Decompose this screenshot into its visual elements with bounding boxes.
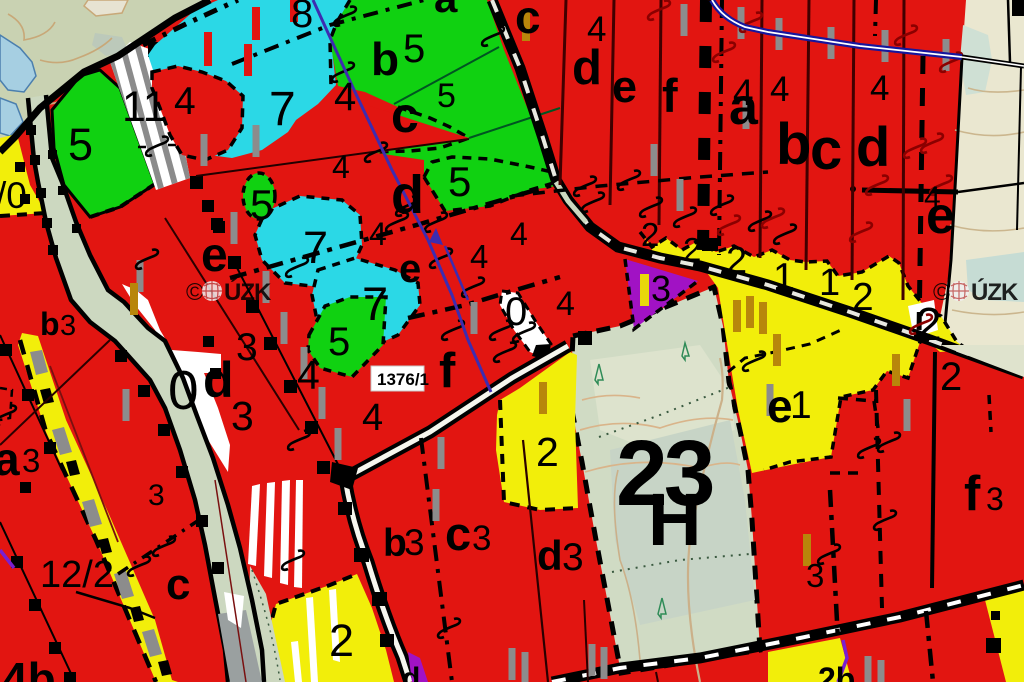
svg-text:ÚZK: ÚZK xyxy=(971,278,1019,306)
svg-text:2: 2 xyxy=(940,355,962,399)
svg-text:3: 3 xyxy=(472,519,491,558)
svg-text:H: H xyxy=(648,478,701,561)
svg-text:4: 4 xyxy=(556,285,575,323)
svg-text:1: 1 xyxy=(773,256,795,299)
svg-text:e: e xyxy=(767,380,793,432)
svg-text:c: c xyxy=(445,507,471,560)
svg-text:5: 5 xyxy=(328,320,350,364)
svg-text:b: b xyxy=(371,33,399,85)
svg-text:d: d xyxy=(402,662,420,682)
svg-text:d: d xyxy=(537,532,563,579)
svg-text:11: 11 xyxy=(122,83,167,131)
svg-text:3: 3 xyxy=(651,268,671,309)
svg-text:2: 2 xyxy=(726,240,747,282)
svg-text:4: 4 xyxy=(770,70,789,109)
svg-text:7: 7 xyxy=(303,222,328,273)
svg-text:a: a xyxy=(729,78,759,136)
svg-text:e: e xyxy=(612,61,637,112)
svg-text:5: 5 xyxy=(448,158,471,205)
svg-text:2: 2 xyxy=(641,216,659,253)
svg-text:3: 3 xyxy=(806,557,824,594)
svg-text:d: d xyxy=(203,352,234,408)
svg-text:a: a xyxy=(434,0,458,21)
svg-text:d: d xyxy=(856,115,890,178)
svg-text:3: 3 xyxy=(236,326,258,369)
svg-text:2: 2 xyxy=(536,429,559,475)
svg-text:3: 3 xyxy=(986,481,1004,517)
svg-text:d: d xyxy=(572,41,602,95)
svg-text:c: c xyxy=(810,117,842,182)
svg-text:0: 0 xyxy=(168,359,199,421)
svg-text:2b: 2b xyxy=(818,661,855,682)
svg-text:e: e xyxy=(926,187,955,245)
svg-text:4: 4 xyxy=(297,352,320,398)
svg-text:3: 3 xyxy=(231,393,254,439)
svg-text:5: 5 xyxy=(250,181,273,228)
svg-text:3: 3 xyxy=(22,442,40,479)
svg-text:7: 7 xyxy=(269,83,296,136)
svg-text:4: 4 xyxy=(334,75,356,119)
svg-text:ÚZK: ÚZK xyxy=(224,278,272,306)
svg-text:1: 1 xyxy=(790,384,812,427)
svg-text:5: 5 xyxy=(403,27,425,71)
svg-text:e: e xyxy=(201,229,228,282)
svg-text:2: 2 xyxy=(683,231,701,268)
svg-text:12/2: 12/2 xyxy=(40,554,114,596)
svg-text:1: 1 xyxy=(819,262,840,304)
svg-text:b: b xyxy=(776,112,811,177)
svg-text:8: 8 xyxy=(291,0,313,36)
svg-text:7: 7 xyxy=(362,277,388,330)
svg-text:5: 5 xyxy=(437,77,456,115)
svg-text:3: 3 xyxy=(404,522,425,563)
svg-text:c: c xyxy=(515,0,541,43)
svg-text:4: 4 xyxy=(470,238,488,275)
svg-text:4: 4 xyxy=(369,216,387,252)
svg-text:c: c xyxy=(166,560,190,609)
svg-text:f: f xyxy=(964,467,981,521)
svg-text:3: 3 xyxy=(148,479,165,512)
svg-text:b: b xyxy=(40,306,60,342)
svg-text:4: 4 xyxy=(174,80,196,123)
svg-text:0: 0 xyxy=(505,290,527,334)
svg-text:1376/1: 1376/1 xyxy=(377,370,429,389)
svg-text:©: © xyxy=(186,279,204,306)
svg-text:a: a xyxy=(0,433,20,485)
svg-text:2: 2 xyxy=(852,276,874,319)
svg-text:/0: /0 xyxy=(0,175,27,216)
svg-text:4: 4 xyxy=(870,69,889,108)
svg-text:4: 4 xyxy=(362,397,383,439)
svg-text:5: 5 xyxy=(68,119,93,170)
svg-text:c: c xyxy=(391,87,419,143)
svg-text:f: f xyxy=(662,69,678,122)
svg-text:3: 3 xyxy=(60,310,76,342)
svg-text:2: 2 xyxy=(329,615,354,666)
svg-text:d: d xyxy=(391,165,424,225)
svg-text:©: © xyxy=(933,279,951,306)
svg-text:4: 4 xyxy=(332,149,350,185)
svg-text:4: 4 xyxy=(510,216,528,252)
svg-text:f: f xyxy=(439,344,456,398)
svg-text:3: 3 xyxy=(562,536,584,579)
svg-text:4b: 4b xyxy=(2,653,56,682)
svg-text:e: e xyxy=(399,247,421,291)
